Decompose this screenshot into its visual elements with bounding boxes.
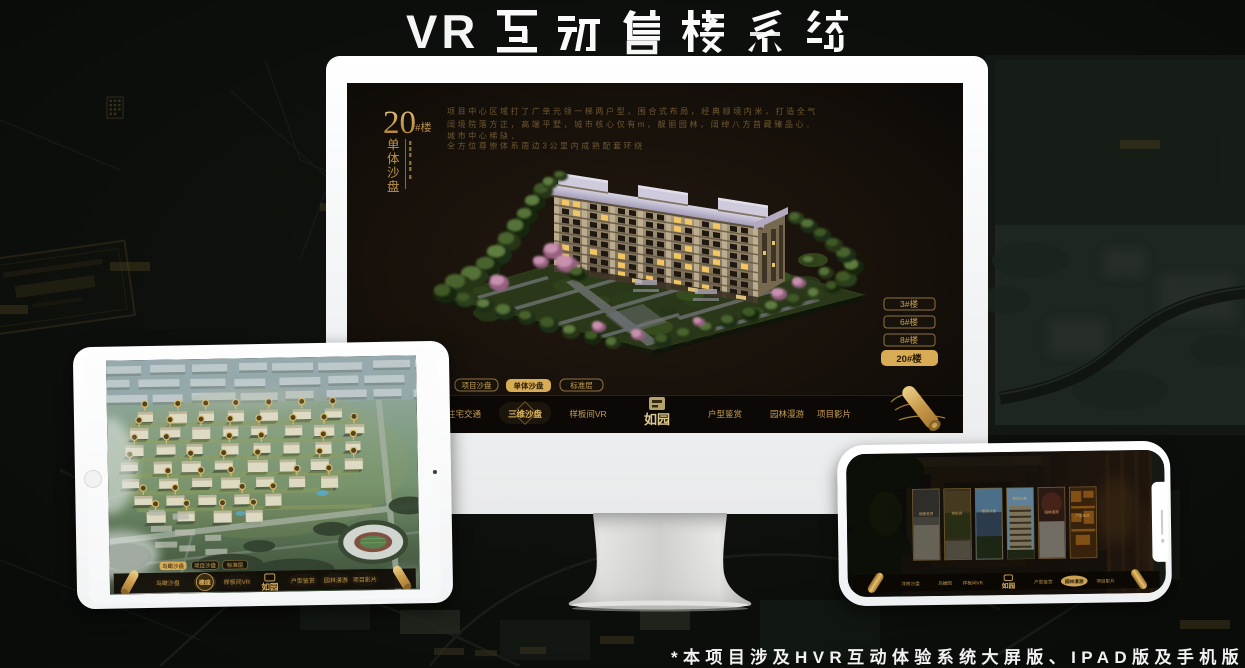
svg-text:项目沙盘: 项目沙盘 [462,380,492,390]
svg-text:园林漫游: 园林漫游 [770,409,805,419]
svg-text:住宅交通: 住宅交通 [447,409,482,419]
svg-text:沙: 沙 [387,166,400,180]
svg-text:楼座沙盘: 楼座沙盘 [982,508,997,513]
svg-text:如园: 如园 [261,582,278,592]
svg-text:项目影片: 项目影片 [817,409,851,419]
svg-text:20#楼: 20#楼 [896,353,922,365]
svg-text:阔境院落方正，高端平墅，城市核心仅有m，靓丽园林，阔绰八方首: 阔境院落方正，高端平墅，城市核心仅有m，靓丽园林，阔绰八方首藏臻品心． [447,119,817,129]
svg-text:标准层: 标准层 [570,380,593,390]
svg-text:园林漫游: 园林漫游 [1044,509,1059,514]
svg-text:期图鉴赏: 期图鉴赏 [919,511,934,516]
svg-text:如园: 如园 [1002,581,1016,590]
svg-text:全方位尊崇体系周边3公里内成熟配套环绕: 全方位尊崇体系周边3公里内成熟配套环绕 [447,141,645,151]
svg-text:样板间VR: 样板间VR [569,409,606,419]
svg-text:VR: VR [406,5,479,58]
svg-text:20: 20 [383,105,416,141]
svg-text:单体沙盘: 单体沙盘 [1012,496,1027,501]
svg-text:户型鉴赏: 户型鉴赏 [708,409,742,419]
svg-text:样板间: 样板间 [952,511,963,516]
svg-text:体: 体 [387,152,400,166]
svg-text:三维沙盘: 三维沙盘 [508,409,543,419]
svg-text:盘: 盘 [387,179,400,194]
svg-text:如园: 如园 [644,412,670,427]
svg-text:6#楼: 6#楼 [900,317,918,327]
svg-text:#楼: #楼 [415,120,432,134]
svg-text:3#楼: 3#楼 [900,299,918,309]
svg-text:8#楼: 8#楼 [900,335,918,345]
svg-text:项目中心区域打了广单元领一梯两户型，围合式布局，经典顺境内米: 项目中心区域打了广单元领一梯两户型，围合式布局，经典顺境内米，打造全气 [447,106,818,116]
svg-text:户型鉴赏: 户型鉴赏 [1075,513,1090,518]
svg-text:城市中心稀缺．: 城市中心稀缺． [447,131,521,141]
svg-text:单: 单 [387,138,400,152]
svg-text:单体沙盘: 单体沙盘 [514,381,544,391]
svg-text:楼座: 楼座 [199,578,211,586]
